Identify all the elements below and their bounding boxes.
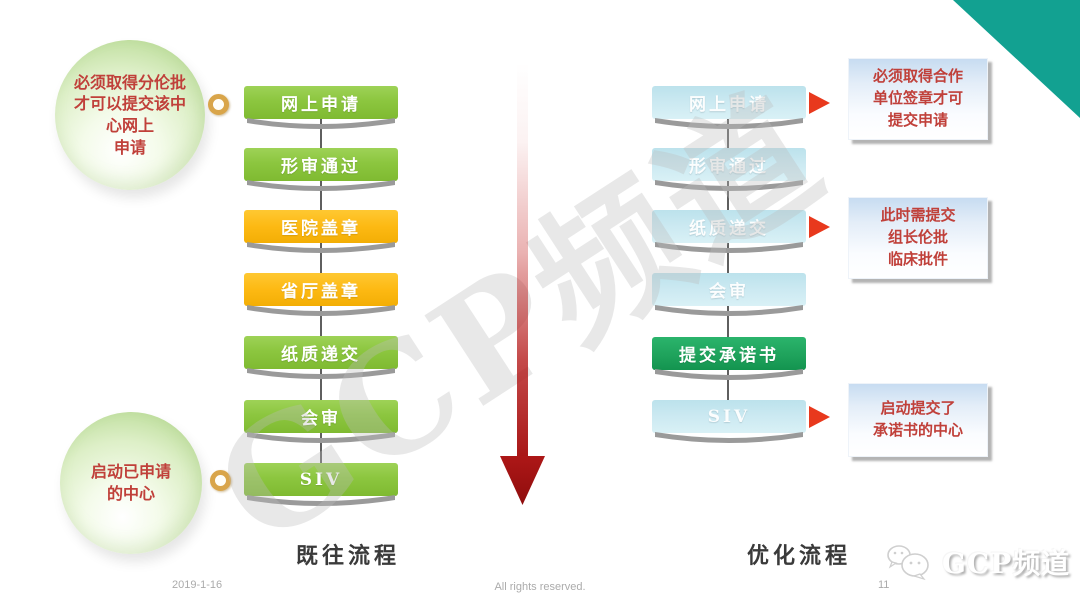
red-right-arrow-icon xyxy=(809,92,830,114)
gold-ring-icon xyxy=(208,94,229,115)
callout-sphere-top: 必须取得分伦批 才可以提交该中 心网上 申请 xyxy=(55,40,205,190)
legacy-flow-title: 既往流程 xyxy=(278,538,418,570)
step-label: 会审 xyxy=(301,404,341,429)
step-label: 形审通过 xyxy=(689,152,769,177)
step-label: 医院盖章 xyxy=(281,214,361,239)
annotation-card-cooperation-seal: 必须取得合作 单位签章才可 提交申请 xyxy=(848,58,988,140)
wave-shadow xyxy=(244,304,398,320)
optimized-step-format-review: 形审通过 xyxy=(652,148,806,181)
footer-copyright: All rights reserved. xyxy=(450,581,630,593)
legacy-step-province-seal: 省厅盖章 xyxy=(244,273,398,306)
wave-shadow xyxy=(244,117,398,133)
slide-canvas: GCP频道 必须取得分伦批 才可以提交该中 心网上 申请 启动已申请 的中心 网… xyxy=(0,0,1080,608)
red-right-arrow-icon xyxy=(809,406,830,428)
wave-shadow xyxy=(652,241,806,257)
callout-sphere-top-text: 必须取得分伦批 才可以提交该中 心网上 申请 xyxy=(74,72,186,158)
wave-shadow xyxy=(652,179,806,195)
step-label: 提交承诺书 xyxy=(679,341,779,366)
optimized-step-commitment-letter: 提交承诺书 xyxy=(652,337,806,370)
center-down-arrow-head xyxy=(500,456,545,505)
step-label: SIV xyxy=(300,470,342,490)
optimized-step-siv: SIV xyxy=(652,400,806,433)
step-label: SIV xyxy=(708,407,750,427)
optimized-step-joint-review: 会审 xyxy=(652,273,806,306)
optimized-step-paper-submit: 纸质递交 xyxy=(652,210,806,243)
step-label: 会审 xyxy=(709,277,749,302)
annotation-card-commitment-center: 启动提交了 承诺书的中心 xyxy=(848,383,988,457)
wave-shadow xyxy=(244,367,398,383)
wave-shadow xyxy=(244,431,398,447)
step-label: 形审通过 xyxy=(281,152,361,177)
legacy-step-format-review: 形审通过 xyxy=(244,148,398,181)
legacy-step-joint-review: 会审 xyxy=(244,400,398,433)
step-label: 网上申请 xyxy=(281,90,361,115)
wave-shadow xyxy=(244,494,398,510)
wave-shadow xyxy=(652,117,806,133)
callout-sphere-bottom: 启动已申请 的中心 xyxy=(60,412,202,554)
legacy-step-online-apply: 网上申请 xyxy=(244,86,398,119)
annotation-text: 启动提交了 承诺书的中心 xyxy=(873,398,963,442)
gold-ring-icon xyxy=(210,470,231,491)
wave-shadow xyxy=(244,241,398,257)
wechat-bubbles-icon xyxy=(884,542,936,582)
wave-shadow xyxy=(652,304,806,320)
callout-sphere-bottom-text: 启动已申请 的中心 xyxy=(91,461,171,504)
wave-shadow xyxy=(652,368,806,384)
step-label: 纸质递交 xyxy=(281,340,361,365)
annotation-text: 此时需提交 组长伦批 临床批件 xyxy=(880,205,955,270)
brand-name: GCP频道 xyxy=(942,542,1070,582)
annotation-text: 必须取得合作 单位签章才可 提交申请 xyxy=(873,66,963,131)
step-label: 纸质递交 xyxy=(689,214,769,239)
brand-logo: GCP频道 xyxy=(884,542,1070,582)
wave-shadow xyxy=(244,179,398,195)
annotation-card-ethics-approval: 此时需提交 组长伦批 临床批件 xyxy=(848,197,988,279)
footer-date: 2019-1-16 xyxy=(172,579,222,591)
legacy-step-paper-submit: 纸质递交 xyxy=(244,336,398,369)
optimized-step-online-apply: 网上申请 xyxy=(652,86,806,119)
step-label: 网上申请 xyxy=(689,90,769,115)
legacy-step-siv: SIV xyxy=(244,463,398,496)
legacy-step-hospital-seal: 医院盖章 xyxy=(244,210,398,243)
wave-shadow xyxy=(652,431,806,447)
step-label: 省厅盖章 xyxy=(281,277,361,302)
red-right-arrow-icon xyxy=(809,216,830,238)
center-down-arrow-shaft xyxy=(517,62,528,458)
optimized-flow-title: 优化流程 xyxy=(729,538,869,570)
